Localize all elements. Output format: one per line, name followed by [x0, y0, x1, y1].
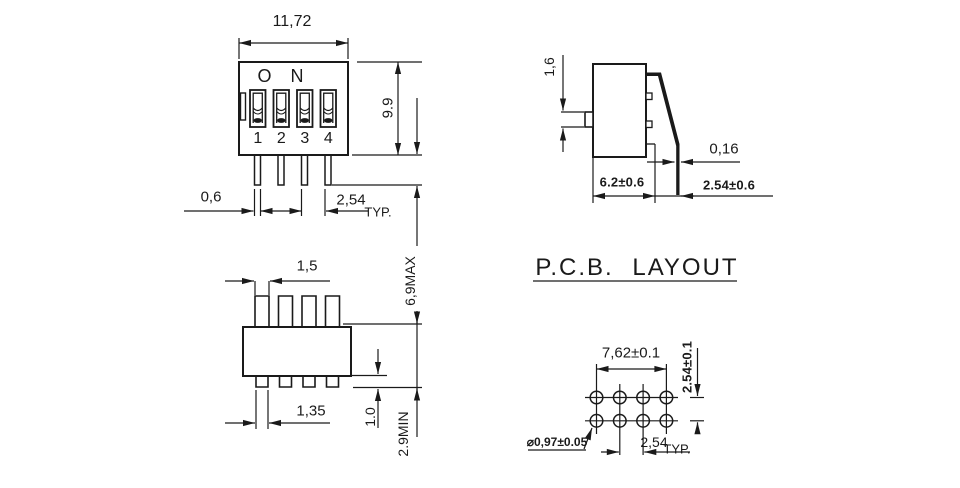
dim-lower-tab-height: 1.0 [363, 407, 377, 426]
switch-slider-recess [324, 118, 332, 123]
side-notch-lower [646, 121, 652, 128]
polarity-notch [241, 93, 246, 120]
switch-slider-recess [301, 118, 309, 123]
switch-position-4 [321, 90, 337, 127]
dim-lower-tab-width: 1,35 [296, 404, 325, 419]
dim-hole-col-pitch-qualifier: TYP. [663, 443, 690, 456]
dim-actuator-height: 1,6 [542, 57, 556, 76]
pcb-layout [528, 281, 737, 455]
switch-position-2 [274, 90, 290, 127]
dim-body-depth: 6.2±0.6 [600, 176, 645, 189]
bottom-view [243, 296, 351, 387]
switch-number-1: 1 [253, 131, 262, 147]
technical-drawing-dip-switch: 11,72 9.9 O N 1 2 3 4 0,6 2,54 TYP. 1,6 … [0, 0, 960, 488]
on-label: O N [257, 67, 310, 85]
dim-hole-row-span: 7,62±0.1 [602, 346, 660, 361]
front-pins [255, 155, 332, 185]
switch-number-3: 3 [300, 131, 309, 147]
switch-number-2: 2 [277, 131, 286, 147]
upper-tabs [255, 296, 340, 327]
dip-body-side [593, 64, 646, 157]
switch-position-1 [250, 90, 266, 127]
dim-hole-diameter: ⌀0,97±0.05 [527, 436, 588, 448]
switch-slider-recess [254, 118, 262, 123]
dim-overall-height: 6,9MAX [403, 256, 417, 306]
drawing-linework [0, 0, 960, 488]
dim-hole-row-pitch: 2.54±0.1 [681, 341, 694, 393]
dip-body-bottom [243, 327, 351, 376]
switch-number-4: 4 [324, 131, 333, 147]
bent-pin [646, 73, 680, 196]
dim-pin-thickness: 0,16 [709, 142, 738, 157]
dim-front-width: 11,72 [273, 14, 312, 30]
dim-pin-width: 0,6 [201, 190, 222, 205]
switch-slider-recess [277, 118, 285, 123]
pcb-layout-title: P.C.B. LAYOUT [535, 256, 738, 280]
dim-pin-pitch: 2,54 [336, 193, 365, 208]
dim-pin-pitch-qualifier: TYP. [364, 206, 391, 219]
dim-front-height: 9.9 [381, 98, 396, 119]
mounting-holes [590, 391, 673, 427]
switch-position-3 [297, 90, 313, 127]
dim-upper-tab-width: 1,5 [297, 259, 318, 274]
dim-pin-offset: 2.54±0.6 [703, 179, 755, 192]
dim-pin-length: 2.9MIN [396, 411, 410, 456]
side-notch-upper [646, 93, 652, 100]
switch-actuator [585, 112, 593, 127]
lower-tabs [256, 376, 339, 387]
